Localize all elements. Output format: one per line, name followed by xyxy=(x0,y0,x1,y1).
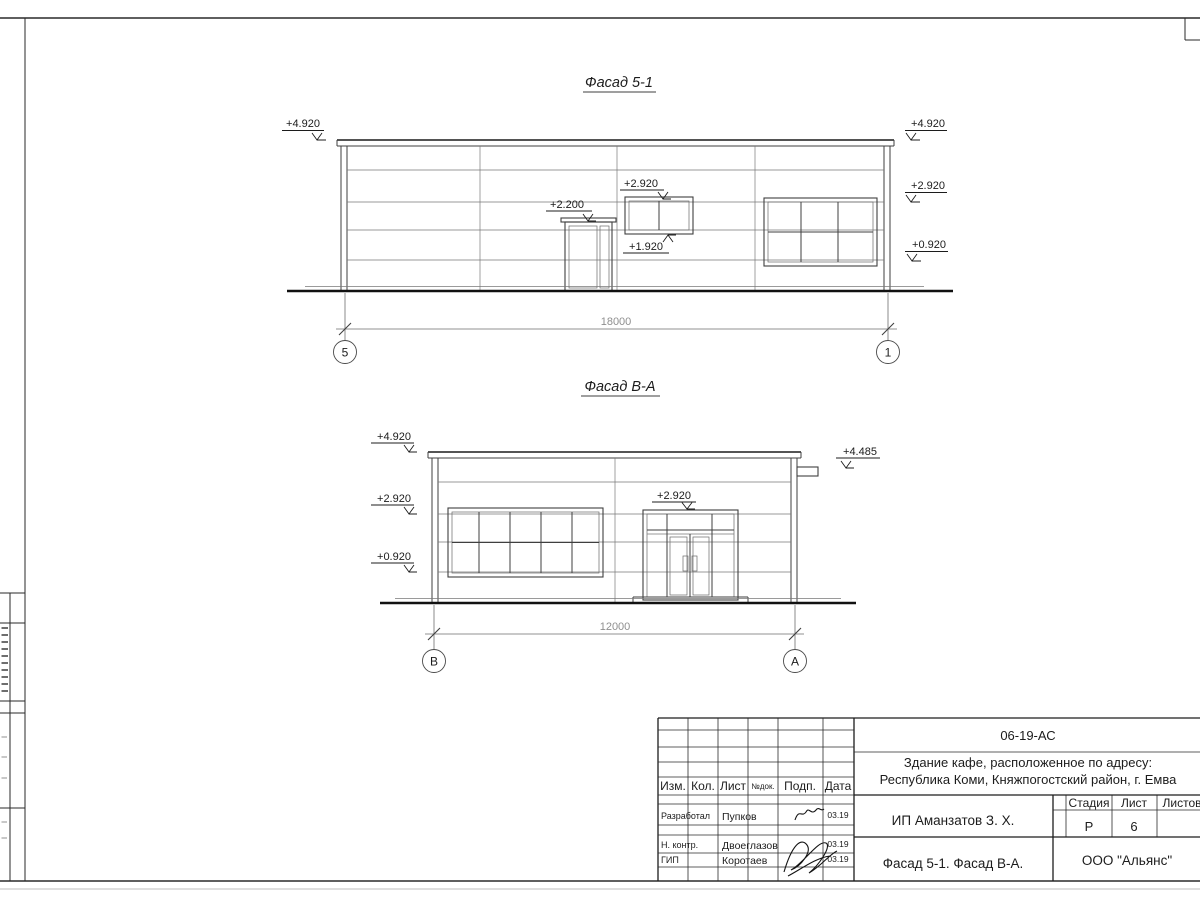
level-mark-va-sill-left: +0.920 xyxy=(371,551,417,572)
left-margin-illegible-text xyxy=(2,628,9,838)
role: Разработал xyxy=(661,811,710,821)
facade-va-entrance xyxy=(633,510,748,602)
level-value: +2.200 xyxy=(550,199,584,211)
level-mark-va-canopy-right: +4.485 xyxy=(836,446,880,468)
level-value: +0.920 xyxy=(377,551,411,563)
axis-bubble-a: А xyxy=(784,650,807,673)
role: ГИП xyxy=(661,855,679,865)
doc-code: 06-19-АС xyxy=(1000,728,1055,743)
name: Коротаев xyxy=(722,855,768,867)
stage-value: Р xyxy=(1085,819,1094,834)
axis-bubble-1: 1 xyxy=(877,341,900,364)
name: Пупков xyxy=(722,811,757,823)
facade-va-building xyxy=(428,452,818,603)
level-value: +2.920 xyxy=(657,490,691,502)
date: 03.19 xyxy=(827,810,849,820)
name: Двоеглазов xyxy=(722,840,778,852)
facade-5-1-title: Фасад 5-1 xyxy=(585,75,653,91)
col-izm: Изм. xyxy=(660,779,686,793)
level-value: +2.920 xyxy=(911,180,945,192)
object-name-line1: Здание кафе, расположенное по адресу: xyxy=(904,755,1152,770)
signature-row-developer: Разработал Пупков 03.19 xyxy=(661,809,849,823)
level-value: +4.920 xyxy=(911,118,945,130)
axis-bubble-5: 5 xyxy=(334,341,357,364)
signature-row-norm-control: Н. контр. Двоеглазов 03.19 xyxy=(661,839,849,852)
facade-va-ground xyxy=(380,599,856,604)
facade-5-1-large-window xyxy=(764,198,877,266)
sheet-value: 6 xyxy=(1130,819,1137,834)
organization-name: ООО "Альянс" xyxy=(1082,853,1172,868)
stage-sheet-table: Стадия Лист Листов Р 6 xyxy=(1069,796,1200,834)
drawing-sheet: Фасад 5-1 xyxy=(0,0,1200,900)
facade-5-1-door xyxy=(561,218,616,291)
col-podp: Подп. xyxy=(784,779,816,793)
level-mark-small-win-sill: +1.920 xyxy=(623,235,676,253)
level-mark-va-door-top: +2.920 xyxy=(652,490,696,509)
axis-bubble-v: В xyxy=(423,650,446,673)
col-data: Дата xyxy=(825,779,852,793)
roof-drain-spout xyxy=(797,467,818,476)
level-mark-parapet-right: +4.920 xyxy=(905,118,947,140)
client-name: ИП Аманзатов З. Х. xyxy=(892,813,1015,828)
level-mark-sill-right: +0.920 xyxy=(905,239,948,261)
facade-5-1-dimension: 18000 xyxy=(336,293,897,340)
level-value: +1.920 xyxy=(629,241,663,253)
title-block: 06-19-АС Здание кафе, расположенное по а… xyxy=(658,718,1200,881)
level-value: +2.920 xyxy=(624,178,658,190)
facade-va-window-band xyxy=(448,508,603,577)
level-value: +4.920 xyxy=(286,118,320,130)
axis-label: А xyxy=(791,655,799,669)
dimension-value: 18000 xyxy=(601,316,632,328)
axis-label: 1 xyxy=(885,346,892,360)
stage-label: Стадия xyxy=(1069,796,1110,810)
facade-va-dimension: 12000 xyxy=(425,605,804,649)
facade-5-1: Фасад 5-1 xyxy=(282,75,953,364)
level-value: +0.920 xyxy=(912,239,946,251)
signature xyxy=(795,809,824,820)
level-value: +2.920 xyxy=(377,493,411,505)
object-name-line2: Республика Коми, Княжпогостский район, г… xyxy=(880,772,1177,787)
level-value: +4.485 xyxy=(843,446,877,458)
facade-5-1-building xyxy=(337,140,894,291)
sheets-label: Листов xyxy=(1163,796,1200,810)
facade-va: Фасад В-А xyxy=(371,379,880,673)
role: Н. контр. xyxy=(661,840,698,850)
level-value: +4.920 xyxy=(377,431,411,443)
drawing-canvas: Фасад 5-1 xyxy=(0,0,1200,900)
col-kol: Кол. xyxy=(691,779,715,793)
facade-va-title: Фасад В-А xyxy=(584,379,655,395)
sheet-label: Лист xyxy=(1121,796,1148,810)
dimension-value: 12000 xyxy=(600,621,631,633)
drawing-title: Фасад 5-1. Фасад В-А. xyxy=(883,856,1024,871)
axis-label: 5 xyxy=(342,346,349,360)
level-mark-va-mid-left: +2.920 xyxy=(371,493,417,514)
axis-label: В xyxy=(430,655,438,669)
level-mark-va-parapet-left: +4.920 xyxy=(371,431,417,452)
level-mark-small-win-top: +2.920 xyxy=(620,178,671,199)
facade-5-1-ground xyxy=(287,287,953,292)
col-list: Лист xyxy=(720,779,747,793)
date: 03.19 xyxy=(827,839,849,849)
level-mark-mid-right: +2.920 xyxy=(905,180,947,202)
col-ndok: №док. xyxy=(751,782,774,791)
level-mark-parapet-left: +4.920 xyxy=(282,118,326,140)
facade-5-1-small-window xyxy=(625,197,693,234)
